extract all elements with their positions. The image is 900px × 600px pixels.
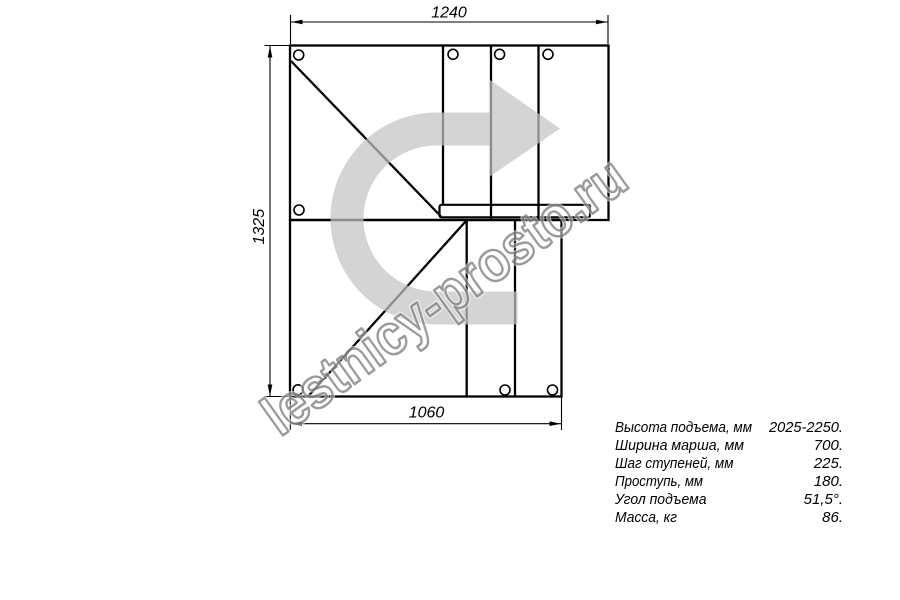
svg-text:Высота подъема, мм: Высота подъема, мм <box>615 419 752 436</box>
svg-text:180.: 180. <box>814 473 843 490</box>
svg-text:Масса, кг: Масса, кг <box>615 509 678 526</box>
svg-text:86.: 86. <box>822 509 843 526</box>
svg-text:2025-2250.: 2025-2250. <box>768 419 843 436</box>
svg-text:51,5°.: 51,5°. <box>804 491 843 508</box>
svg-text:1240: 1240 <box>431 5 467 22</box>
svg-text:Проступь, мм: Проступь, мм <box>615 473 703 490</box>
svg-text:Ширина марша, мм: Ширина марша, мм <box>615 437 744 454</box>
svg-text:225.: 225. <box>813 455 843 472</box>
svg-text:1060: 1060 <box>409 405 445 422</box>
svg-text:Угол подъема: Угол подъема <box>614 491 706 508</box>
svg-text:1325: 1325 <box>251 209 268 245</box>
svg-text:Шаг ступеней, мм: Шаг ступеней, мм <box>615 455 734 472</box>
svg-text:700.: 700. <box>814 437 843 454</box>
